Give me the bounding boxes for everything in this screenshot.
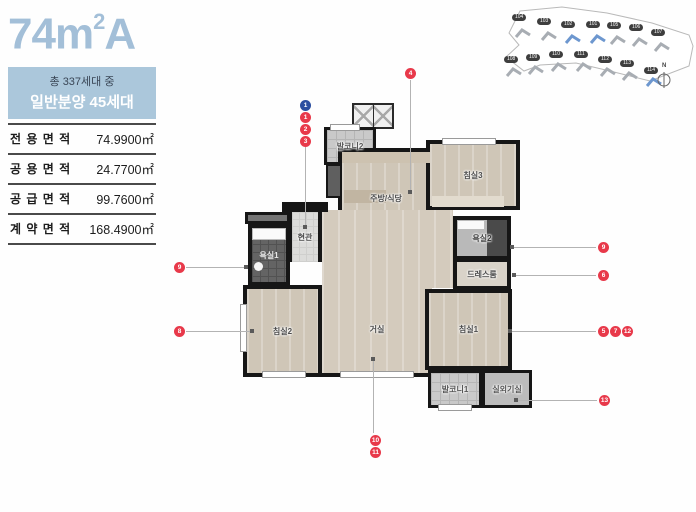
leader-line <box>516 400 597 401</box>
area-label: 전 용 면 적 <box>8 130 71 147</box>
bathtub-icon <box>252 228 286 240</box>
callout-10: 10 <box>370 435 381 446</box>
site-key-plan: 104 103 102 101 105 106 107 108 109 110 … <box>492 4 696 96</box>
room-label: 침실1 <box>459 324 478 335</box>
leader-dot <box>303 225 307 229</box>
callout-5: 5 <box>598 326 609 337</box>
info-panel: 74m2A 총 337세대 중 일반분양 45세대 전 용 면 적 74.990… <box>8 0 158 245</box>
leader-line <box>373 359 374 433</box>
hallway-floor <box>322 210 453 288</box>
room-label: 침실3 <box>463 170 482 181</box>
building-badge: 113 <box>620 60 634 67</box>
callout-4: 4 <box>405 68 416 79</box>
storage-closet <box>245 212 290 224</box>
table-row: 계 약 면 적 168.4900㎡ <box>8 213 156 245</box>
leader-dot <box>508 329 512 333</box>
room-label: 현관 <box>298 232 313 243</box>
area-value: 74.9900㎡ <box>96 129 156 148</box>
callout-9-right: 9 <box>598 242 609 253</box>
elevator-shaft-icon <box>373 105 393 127</box>
callout-2: 2 <box>300 124 311 135</box>
leader-line <box>514 275 596 276</box>
callout-7: 7 <box>610 326 621 337</box>
window <box>240 304 247 352</box>
leader-dot <box>514 398 518 402</box>
room-label: 거실 <box>370 324 385 335</box>
callout-13: 13 <box>599 395 610 406</box>
title-base: 74m <box>8 10 93 59</box>
room-label: 실외기실 <box>492 384 521 395</box>
area-value: 24.7700㎡ <box>96 159 156 178</box>
building-badge: 104 <box>512 14 526 21</box>
area-table: 전 용 면 적 74.9900㎡ 공 용 면 적 24.7700㎡ 공 급 면 … <box>8 123 156 245</box>
building-badge: 105 <box>607 22 621 29</box>
leader-dot <box>510 245 514 249</box>
window <box>262 371 306 378</box>
household-badge: 총 337세대 중 일반분양 45세대 <box>8 67 156 119</box>
window <box>330 124 360 131</box>
building-badge: 107 <box>651 29 665 36</box>
area-label: 공 용 면 적 <box>8 160 71 177</box>
building-badge: 112 <box>598 56 612 63</box>
building-footprint <box>552 64 566 71</box>
building-badge: 108 <box>504 56 518 63</box>
area-label: 공 급 면 적 <box>8 190 71 207</box>
brochure-page: { "header": { "title": {"base": "74m", "… <box>0 0 696 512</box>
area-value: 99.7600㎡ <box>96 189 156 208</box>
title-superscript: 2 <box>93 9 104 34</box>
leader-dot <box>250 329 254 333</box>
kitchen-counter <box>342 152 430 163</box>
building-footprint <box>507 69 521 76</box>
leader-line <box>305 147 306 227</box>
callout-3: 3 <box>300 136 311 147</box>
toilet-icon <box>254 262 263 271</box>
building-badge: 110 <box>549 51 563 58</box>
leader-line <box>410 80 411 192</box>
leader-line <box>186 331 252 332</box>
building-badge: 102 <box>561 21 575 28</box>
north-label: N <box>662 63 666 69</box>
general-sale-households: 일반분양 45세대 <box>8 91 156 112</box>
room-label: 욕실1 <box>259 250 278 261</box>
room-label: 침실2 <box>273 326 292 337</box>
window <box>438 404 472 411</box>
leader-line <box>186 267 246 268</box>
building-badge: 111 <box>574 51 588 58</box>
table-row: 전 용 면 적 74.9900㎡ <box>8 123 156 153</box>
window <box>340 371 414 378</box>
room-dressroom: 드레스룸 <box>453 260 511 290</box>
bath2-fixtures <box>457 220 485 230</box>
title-variant: A <box>104 10 135 59</box>
leader-line <box>510 331 596 332</box>
leader-dot <box>244 265 248 269</box>
room-acroom: 실외기실 <box>482 370 532 408</box>
leader-dot <box>512 273 516 277</box>
room-living: 거실 <box>322 285 432 377</box>
room-balcony1: 발코니1 <box>428 370 482 408</box>
building-badge: 103 <box>537 18 551 25</box>
room-bedroom1: 침실1 <box>425 289 512 370</box>
window <box>442 138 496 145</box>
building-badge: 106 <box>629 24 643 31</box>
room-label: 드레스룸 <box>467 269 496 280</box>
callout-12: 12 <box>622 326 633 337</box>
area-value: 168.4900㎡ <box>89 219 156 238</box>
callout-9-left: 9 <box>174 262 185 273</box>
table-row: 공 용 면 적 24.7700㎡ <box>8 153 156 183</box>
leader-line <box>512 247 596 248</box>
total-households: 총 337세대 중 <box>8 73 156 89</box>
building-badge: 109 <box>526 54 540 61</box>
building-badge: 114 <box>644 67 658 74</box>
leader-dot <box>371 357 375 361</box>
building-badge: 101 <box>586 21 600 28</box>
callout-blue-1: 1 <box>300 100 311 111</box>
callout-11: 11 <box>370 447 381 458</box>
room-label: 주방/식당 <box>370 193 402 204</box>
unit-type-title: 74m2A <box>8 0 158 61</box>
table-row: 공 급 면 적 99.7600㎡ <box>8 183 156 213</box>
pantry-unit <box>326 164 342 198</box>
callout-6: 6 <box>598 270 609 281</box>
bedroom3-wardrobe <box>432 196 504 207</box>
room-label: 욕실2 <box>472 233 491 244</box>
callout-1: 1 <box>300 112 311 123</box>
room-label: 발코니2 <box>337 141 364 152</box>
room-label: 발코니1 <box>442 384 469 395</box>
leader-dot <box>408 190 412 194</box>
floor-plan: 발코니2 주방/식당 침실3 현관 욕실1 욕실2 드레스룸 침실2 거실 침실… <box>170 62 640 462</box>
area-label: 계 약 면 적 <box>8 220 71 237</box>
room-bedroom2: 침실2 <box>243 285 322 377</box>
callout-8-left: 8 <box>174 326 185 337</box>
